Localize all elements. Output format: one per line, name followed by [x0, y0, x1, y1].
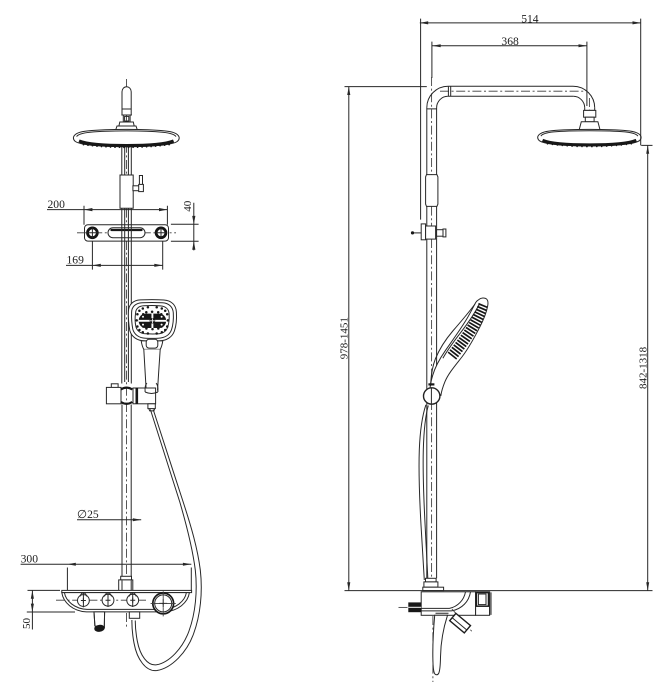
svg-text:300: 300: [21, 552, 39, 565]
svg-text:368: 368: [501, 35, 519, 48]
svg-text:169: 169: [67, 254, 85, 267]
svg-text:40: 40: [182, 200, 194, 212]
svg-text:514: 514: [521, 12, 539, 25]
svg-text:50: 50: [21, 618, 33, 630]
svg-text:∅25: ∅25: [77, 508, 99, 521]
svg-text:842-1318: 842-1318: [638, 346, 650, 389]
svg-text:978-1451: 978-1451: [339, 317, 351, 359]
svg-text:200: 200: [48, 198, 66, 211]
